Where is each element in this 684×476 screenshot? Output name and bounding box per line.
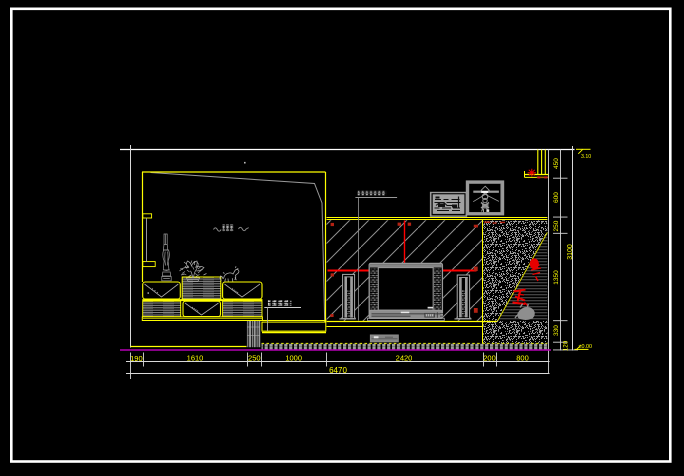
svg-text:1000: 1000: [285, 354, 302, 363]
svg-text:3100: 3100: [567, 244, 574, 260]
svg-text:800: 800: [516, 354, 529, 363]
svg-text:1350: 1350: [553, 270, 560, 285]
svg-text:120: 120: [563, 340, 570, 351]
svg-text:250: 250: [553, 220, 560, 231]
svg-text:6470: 6470: [329, 366, 347, 375]
svg-text:±0.00: ±0.00: [579, 344, 592, 350]
svg-text:200: 200: [483, 354, 496, 363]
svg-text:330: 330: [553, 325, 560, 336]
svg-text:3.10: 3.10: [581, 154, 591, 160]
svg-text:190: 190: [130, 354, 143, 363]
svg-text:600: 600: [553, 192, 560, 203]
svg-text:1610: 1610: [187, 354, 204, 363]
svg-text:2420: 2420: [396, 354, 413, 363]
svg-text:450: 450: [553, 158, 560, 169]
svg-text:250: 250: [248, 354, 261, 363]
